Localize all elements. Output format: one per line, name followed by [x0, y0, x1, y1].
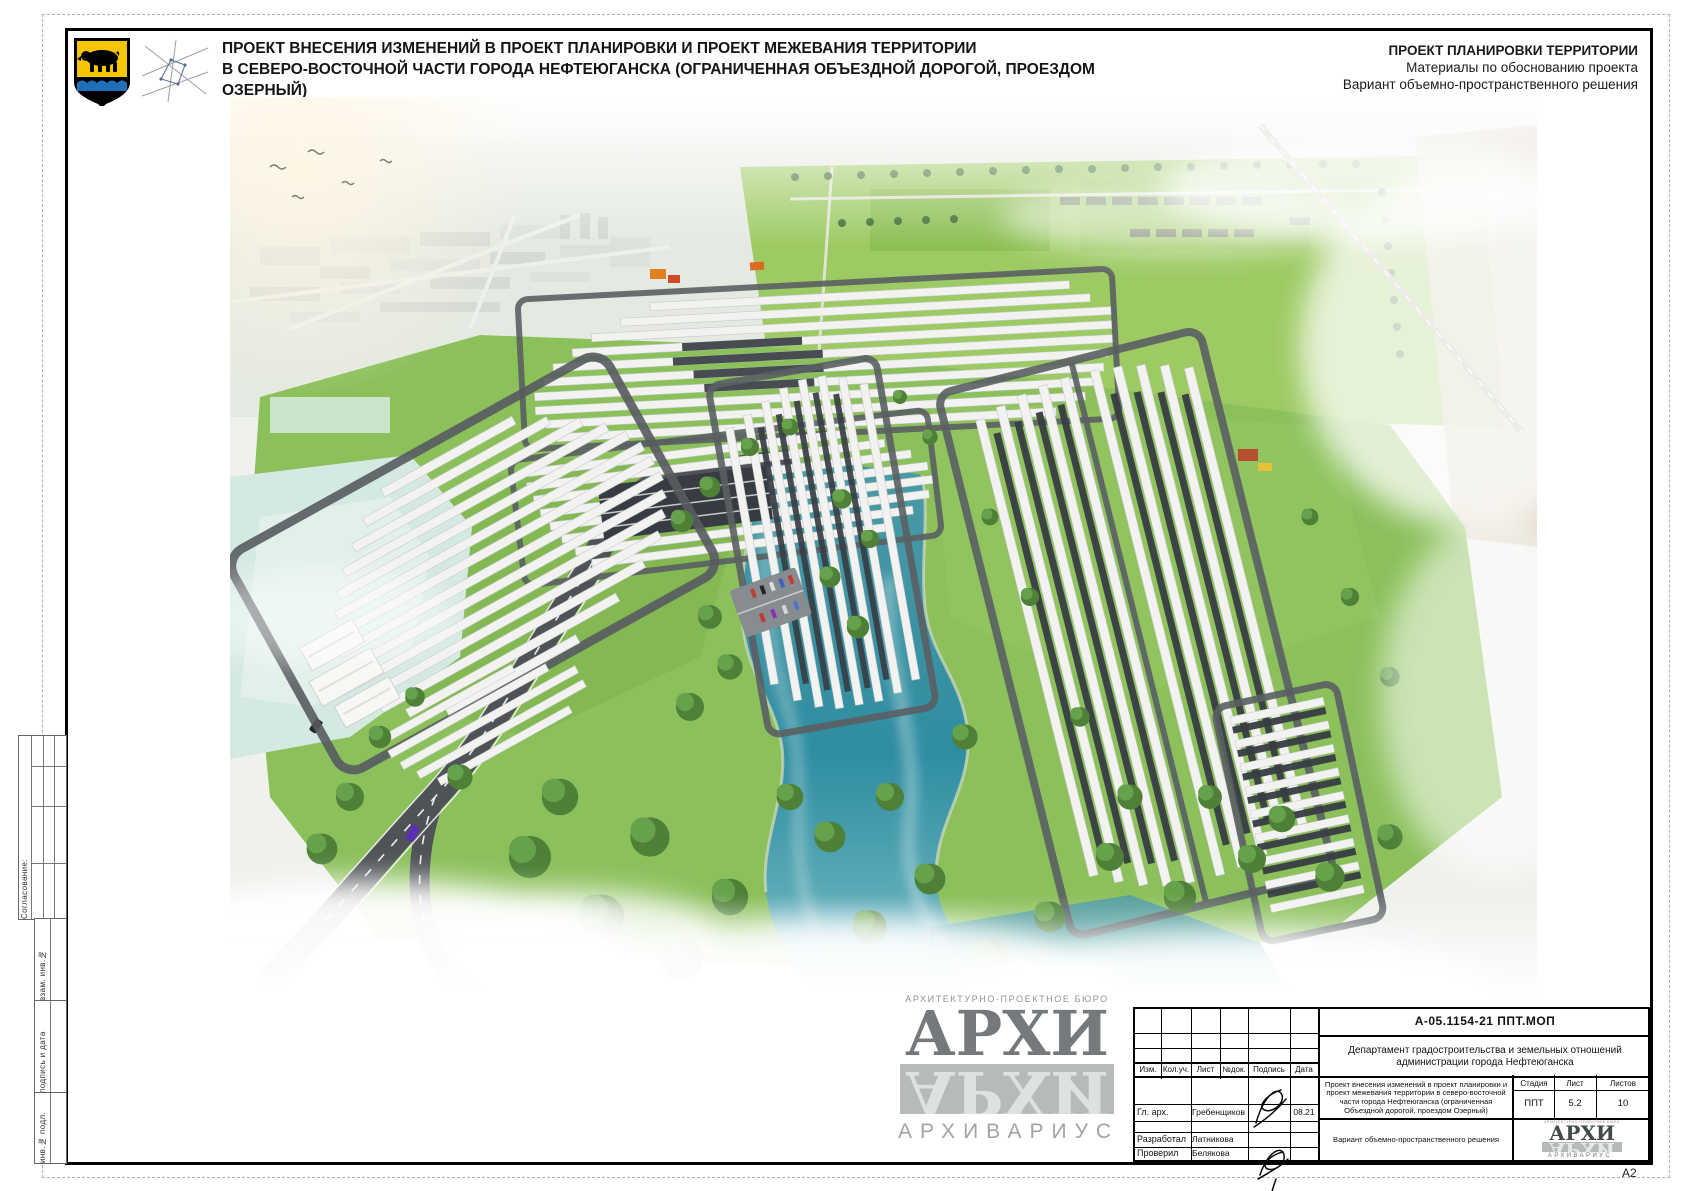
bureau-watermark-reflection: АРХИ [900, 1064, 1114, 1114]
sheets-value: 10 [1596, 1091, 1650, 1118]
vzam-inv-label: взам. инв.№ [38, 919, 47, 1001]
bureau-watermark: АРХИТЕКТУРНО-ПРОЕКТНОЕ БЮРО АРХИ АРХИ АР… [898, 994, 1116, 1144]
col-koluch: Кол.уч. [1161, 1063, 1191, 1077]
subtitle-line2: Материалы по обоснованию проекта [1118, 59, 1638, 76]
stamp-logo-subtitle: АРХИВАРИУС. [1548, 1153, 1616, 1160]
date-glarch: 08.21 [1290, 1104, 1318, 1121]
role-glarch: Гл. арх. [1137, 1104, 1189, 1121]
organization: Департамент градостроительства и земельн… [1325, 1037, 1645, 1076]
paper-format-label: А2 [1622, 1166, 1637, 1180]
masterplan-3d-render [230, 97, 1537, 993]
sheet-subtitle: Вариант объемно-пространственного решени… [1323, 1120, 1509, 1160]
signatures [1248, 1079, 1294, 1191]
col-podpis: Подпись [1248, 1063, 1290, 1077]
approval-box: Согласование: [18, 735, 67, 920]
inv-podl-label: инв.№ подл. [38, 1093, 47, 1163]
project-description: Проект внесения изменений в проект плани… [1323, 1078, 1509, 1118]
col-list: Лист [1191, 1063, 1220, 1077]
sheet-value: 5.2 [1554, 1091, 1596, 1118]
stamp-logo-name: АРХИ [1549, 1124, 1615, 1142]
inv-podl-box: инв.№ подл. [34, 1092, 67, 1164]
col-izm: Изм. [1135, 1063, 1161, 1077]
coat-of-arms-icon [72, 36, 132, 106]
stage-label: Стадия [1514, 1077, 1554, 1090]
approval-label: Согласование: [20, 736, 29, 919]
sheet-title: ПРОЕКТ ВНЕСЕНИЯ ИЗМЕНЕНИЙ В ПРОЕКТ ПЛАНИ… [222, 38, 1182, 101]
name-razrabotal: Латникова [1192, 1132, 1248, 1147]
project-subtitle: ПРОЕКТ ПЛАНИРОВКИ ТЕРРИТОРИИ Материалы п… [1118, 42, 1638, 93]
bureau-watermark-name: АРХИ [898, 1004, 1116, 1064]
name-proveril: Белякова [1192, 1147, 1248, 1160]
podpis-data-label: подпись и дата [38, 1001, 47, 1093]
role-razrabotal: Разработал [1137, 1132, 1191, 1147]
subtitle-line3: Вариант объемно-пространственного решени… [1118, 76, 1638, 93]
doc-number: А-05.1154-21 ППТ.МОП [1318, 1009, 1652, 1035]
stamp-logo-reflection: АРХИ [1542, 1142, 1622, 1152]
vzam-inv-box: взам. инв.№ [34, 918, 67, 1002]
col-data: Дата [1290, 1063, 1318, 1077]
role-proveril: Проверил [1137, 1147, 1191, 1160]
sheet-title-line2: В СЕВЕРО-ВОСТОЧНОЙ ЧАСТИ ГОРОДА НЕФТЕЮГА… [222, 59, 1182, 101]
subtitle-line1: ПРОЕКТ ПЛАНИРОВКИ ТЕРРИТОРИИ [1118, 42, 1638, 59]
name-glarch: Гребенщиков [1192, 1104, 1248, 1121]
col-ndok: №док. [1220, 1063, 1248, 1077]
sheets-label: Листов [1596, 1077, 1650, 1090]
sheet-title-line1: ПРОЕКТ ВНЕСЕНИЯ ИЗМЕНЕНИЙ В ПРОЕКТ ПЛАНИ… [222, 38, 1182, 59]
bureau-star-logo-icon [140, 38, 210, 104]
sheet: ПРОЕКТ ВНЕСЕНИЯ ИЗМЕНЕНИЙ В ПРОЕКТ ПЛАНИ… [0, 0, 1684, 1191]
sheet-label: Лист [1554, 1077, 1596, 1090]
stamp-bureau-logo: АРХИТЕКТУРНО-ПРОЕКТНОЕ БЮРО АРХИ АРХИ АР… [1514, 1120, 1650, 1160]
stage-value: ППТ [1514, 1091, 1554, 1118]
podpis-data-box: подпись и дата [34, 1000, 67, 1094]
title-block: Изм. Кол.уч. Лист №док. Подпись Дата Гл.… [1133, 1007, 1650, 1162]
bureau-watermark-subtitle: АРХИВАРИУС [898, 1120, 1116, 1144]
